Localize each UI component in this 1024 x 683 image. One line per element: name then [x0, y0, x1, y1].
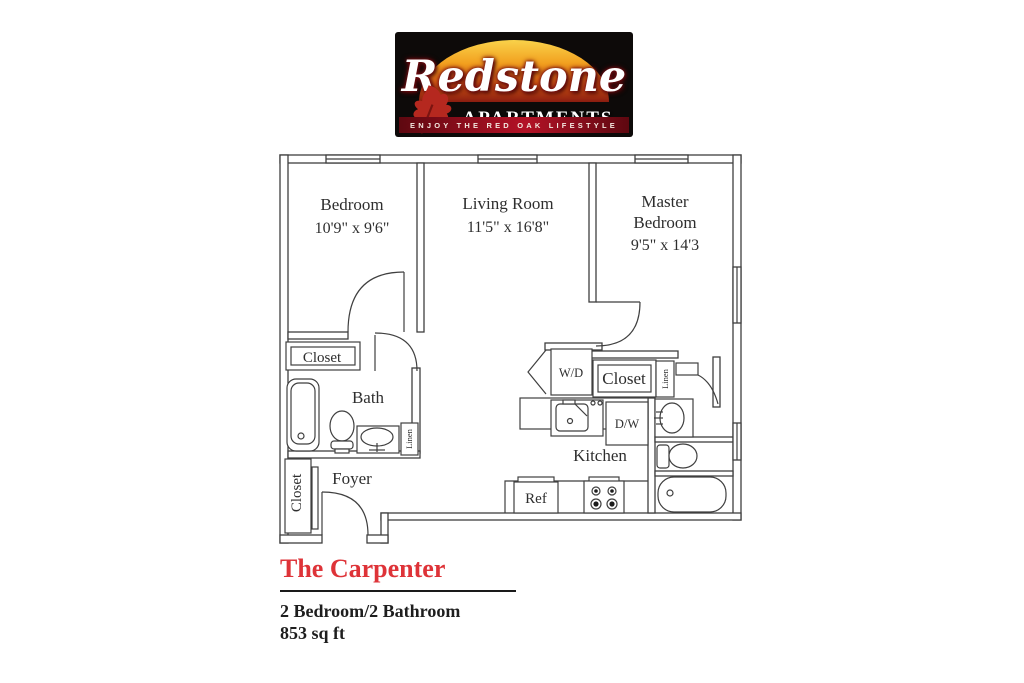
window	[326, 155, 380, 163]
toilet2-icon	[657, 444, 697, 468]
wd-bifold-door	[528, 350, 546, 394]
window	[733, 423, 741, 460]
linen-hall-label: Linen	[660, 368, 670, 389]
stove-icon	[584, 477, 624, 513]
window	[478, 155, 537, 163]
wd-label: W/D	[559, 366, 583, 380]
foyer-closet-door	[312, 467, 318, 529]
sink-icon	[357, 426, 399, 453]
bedroom-door	[348, 272, 404, 332]
title-underline	[280, 590, 516, 592]
master-dims: 9'5" x 14'3	[631, 237, 699, 254]
kitchen-sink-icon	[551, 400, 603, 436]
bedroom-closet-label: Closet	[303, 350, 342, 366]
bath-label: Bath	[352, 388, 385, 407]
floorplan-title: The Carpenter	[280, 554, 580, 584]
master-label-2: Bedroom	[633, 213, 696, 232]
bedroom-label: Bedroom	[320, 195, 383, 214]
floorplan-details: The Carpenter 2 Bedroom/2 Bathroom 853 s…	[280, 554, 580, 644]
toilet-icon	[330, 411, 354, 453]
living-dims: 11'5" x 16'8"	[467, 219, 549, 236]
living-label: Living Room	[462, 194, 553, 213]
hall-closet-label: Closet	[602, 369, 646, 388]
floorplan-area: 853 sq ft	[280, 622, 580, 644]
bathroom2-door	[676, 363, 718, 404]
linen-bath-label: Linen	[404, 428, 414, 449]
foyer-label: Foyer	[332, 469, 372, 488]
kitchen-label: Kitchen	[573, 446, 627, 465]
vanity-sink-icon	[654, 399, 693, 437]
dw-label: D/W	[615, 417, 640, 431]
bedroom-dims: 10'9" x 9'6"	[315, 220, 390, 237]
window	[733, 267, 741, 323]
bathtub-icon	[287, 379, 319, 451]
master-label-1: Master	[641, 192, 689, 211]
bath-door	[375, 333, 417, 371]
bath2-fixtures	[654, 399, 726, 512]
entry-door	[322, 492, 368, 535]
bathtub2-icon	[658, 477, 726, 512]
window	[635, 155, 688, 163]
ref-label: Ref	[525, 491, 547, 507]
floorplan-config: 2 Bedroom/2 Bathroom	[280, 600, 580, 622]
foyer-closet-label: Closet	[289, 473, 305, 512]
master-bedroom-door	[596, 302, 640, 346]
